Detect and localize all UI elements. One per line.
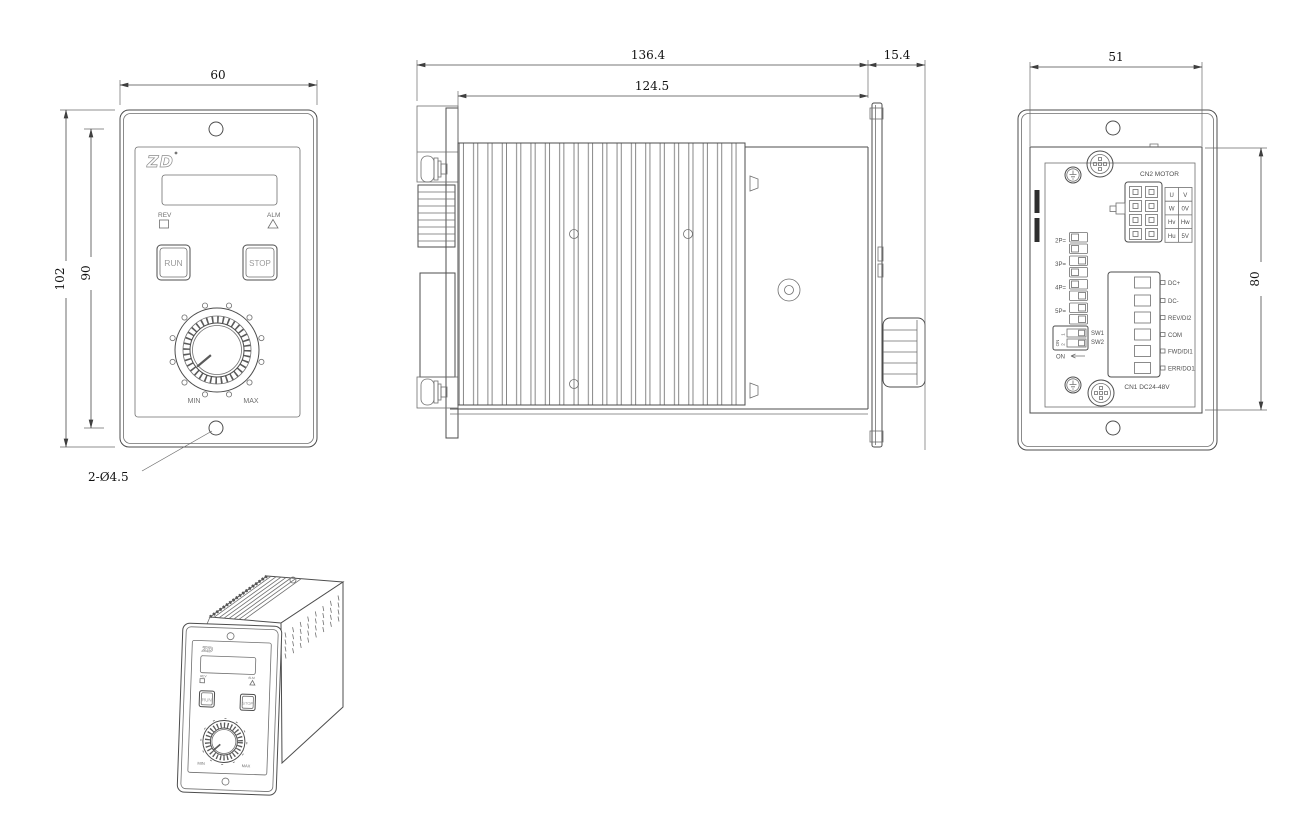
iso-max-label: MAX [242, 763, 251, 768]
side-bottom-connector-housing [420, 273, 455, 377]
front-dim-hole-spacing-text: 90 [79, 265, 93, 280]
on-direction-arrow [1071, 354, 1085, 358]
led-display-window [162, 175, 277, 205]
body-clip-top [750, 176, 758, 191]
rear-mounting-hole-bottom [1106, 421, 1120, 435]
side-view: 136.4 124.5 15.4 [417, 48, 925, 450]
knob-knurl-teeth [187, 320, 248, 381]
rear-dim-height-text: 80 [1248, 271, 1262, 286]
front-mounting-hole-bottom [209, 421, 223, 435]
dip-row-5p: 5P= [1055, 309, 1066, 315]
cn1-connector [1108, 272, 1165, 377]
front-view: ZD REV ALM RUN STOP [53, 68, 317, 484]
cn2-pin-hw: Hw [1181, 220, 1190, 226]
iso-rev-label: REV [200, 674, 208, 678]
iso-front-panel: ZD REV ALM RUN STOP [177, 623, 282, 795]
cn2-pin-grid [1130, 187, 1158, 240]
body-clip-bottom [750, 383, 758, 398]
rear-dim-height: 80 [1205, 148, 1268, 410]
front-dim-height-text: 102 [53, 268, 67, 291]
side-bottom-screw [421, 379, 447, 405]
rear-mounting-hole-top [1106, 121, 1120, 135]
front-mounting-hole-top [209, 122, 223, 136]
cn1-terminal-labels: DC+ DC- REV/DI2 COM FWD/DI1 ERR/DO1 [1168, 281, 1195, 373]
cn2-pin-hv: Hv [1168, 220, 1175, 226]
speed-knob [170, 303, 264, 397]
sw2-label: SW2 [1091, 340, 1105, 346]
dip-row-4p: 4P= [1055, 286, 1066, 292]
front-hole-callout-text: 2-Ø4.5 [88, 470, 129, 484]
knob-cap-inner [193, 326, 242, 375]
cn2-pin-v: V [1183, 193, 1187, 199]
iso-min-label: MIN [197, 761, 205, 766]
dip-switch-on-marking: ON [1055, 340, 1060, 347]
cn2-pin-table: U V W 0V Hv Hw Hu 5V [1165, 188, 1192, 243]
side-dim-body-text: 124.5 [635, 79, 669, 93]
dip-row-2p: 2P= [1055, 239, 1066, 245]
run-button-label: RUN [164, 258, 182, 268]
side-dim-overall-text: 136.4 [631, 48, 666, 62]
stop-button: STOP [243, 245, 277, 280]
technical-drawing-canvas: ZD REV ALM RUN STOP [0, 0, 1300, 835]
technical-drawing-page: ZD REV ALM RUN STOP [0, 0, 1300, 835]
cn2-connector [1110, 182, 1162, 242]
cn2-pin-hu: Hu [1168, 234, 1176, 240]
body-boss-inner [785, 286, 794, 295]
ground-screw-top [1065, 167, 1081, 183]
dip-switch-block: ON 1 2 [1053, 326, 1088, 350]
dip-switch-pos2: 2 [1061, 343, 1066, 346]
on-direction: ON [1056, 354, 1085, 361]
brand-logo: ZD [146, 152, 174, 171]
front-hole-callout: 2-Ø4.5 [88, 431, 212, 484]
side-top-screw [421, 156, 447, 182]
rear-panel-outline [1018, 110, 1217, 450]
knob-cap-outer [190, 323, 244, 377]
side-dim-body: 124.5 [458, 79, 868, 138]
side-top-connector-housing [417, 106, 458, 182]
cn2-pin-w: W [1169, 207, 1175, 213]
run-button: RUN [157, 245, 190, 280]
front-dim-width: 60 [120, 68, 317, 105]
brand-logo-trademark-dot [175, 152, 178, 155]
rear-view: CN2 MOTOR U V W 0V Hv Hw [1018, 50, 1268, 450]
knob-knurl-outer [183, 316, 251, 384]
cn1-terminal-err-do1: ERR/DO1 [1168, 367, 1195, 373]
rear-dim-width-text: 51 [1108, 50, 1123, 64]
cn2-pin-5v: 5V [1182, 234, 1189, 240]
front-dim-width-text: 60 [210, 68, 225, 82]
rev-indicator-label: REV [158, 212, 172, 219]
cn2-label: CN2 MOTOR [1140, 171, 1179, 178]
dip-legend: 2P= 3P= 4P= 5P= [1055, 233, 1087, 325]
rear-round-connector-top [1087, 151, 1113, 177]
knob-max-label: MAX [243, 398, 259, 405]
rear-dim-width: 51 [1030, 50, 1202, 146]
cn1-terminal-com: COM [1168, 333, 1182, 339]
cn1-terminal-dcplus: DC+ [1168, 281, 1181, 287]
knob-pointer [197, 355, 211, 367]
on-direction-label: ON [1056, 355, 1065, 361]
rear-vent-slot-2 [1035, 218, 1040, 242]
side-terminal-block [418, 185, 455, 247]
ground-screw-bottom [1065, 377, 1081, 393]
cn2-pin-0v: 0V [1182, 207, 1189, 213]
rear-vent-slot-1 [1035, 190, 1040, 213]
isometric-view: ZD REV ALM RUN STOP [177, 576, 343, 795]
cn1-terminal-rev-di2: REV/DI2 [1168, 316, 1192, 322]
rear-panel-outline-inner [1022, 114, 1214, 447]
front-dim-hole-spacing: 90 [79, 129, 104, 428]
alm-indicator-icon [268, 220, 278, 229]
rev-indicator-icon [160, 220, 169, 228]
knob-min-label: MIN [188, 398, 201, 405]
side-dim-front-text: 15.4 [884, 48, 911, 62]
stop-button-label: STOP [249, 259, 271, 268]
cn1-terminal-dcminus: DC- [1168, 299, 1179, 305]
cn2-pin-u: U [1170, 193, 1174, 199]
iso-panel-outline [177, 623, 282, 795]
iso-stop-label: STOP [242, 701, 253, 706]
dip-switch-pos1: 1 [1061, 333, 1066, 336]
sw1-label: SW1 [1091, 331, 1105, 337]
dip-row-3p: 3P= [1055, 262, 1066, 268]
rear-body-outline [1030, 147, 1202, 413]
side-knob [883, 318, 925, 387]
cn1-label: CN1 DC24-48V [1124, 384, 1170, 391]
cn1-terminal-fwd-di1: FWD/DI1 [1168, 350, 1193, 356]
iso-stop-button: STOP [240, 694, 256, 711]
iso-brand-logo: ZD [201, 646, 213, 654]
alm-indicator-label: ALM [267, 212, 280, 219]
side-dim-overall: 136.4 [417, 48, 868, 101]
side-panel-plate [872, 103, 882, 447]
iso-body-panel-edge [207, 617, 210, 624]
iso-run-button: RUN [199, 691, 215, 708]
heatsink-fins [458, 143, 745, 405]
iso-alm-label: ALM [248, 676, 255, 680]
rear-round-connector-bottom [1088, 380, 1114, 406]
iso-run-label: RUN [202, 697, 212, 702]
body-boss-outer [778, 279, 800, 301]
